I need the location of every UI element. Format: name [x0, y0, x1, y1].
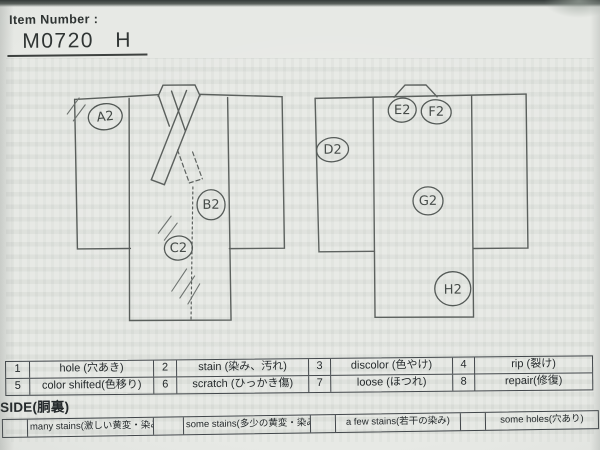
condition-legend-table: 1 hole (穴あき) 2 stain (染み、汚れ) 3 discolor …	[5, 355, 593, 396]
photo-top-edge	[0, 0, 600, 7]
legend-num: 4	[452, 357, 474, 373]
severity-label: some holes(穴あり)	[485, 411, 598, 430]
item-number-value: M0720 H	[22, 29, 147, 54]
legend-num: 2	[153, 360, 176, 376]
legend-label: scratch (ひっかき傷)	[176, 376, 308, 393]
severity-mark-cell	[310, 415, 335, 432]
severity-label: a few stains(若干の染み)	[335, 413, 460, 432]
legend-num: 8	[452, 374, 474, 390]
legend-label: repair(修復)	[474, 373, 592, 390]
legend-label: color shifted(色移り)	[29, 378, 153, 395]
front-right-sleeve	[228, 97, 284, 249]
front-collar-over-band	[151, 90, 201, 184]
legend-label: loose (ほつれ)	[330, 375, 452, 392]
marker-label-c2: C2	[170, 241, 187, 256]
severity-label: many stains(激しい黄変・染み)	[27, 418, 153, 437]
legend-label: rip (裂け)	[474, 356, 592, 373]
legend-label: discolor (色やけ)	[330, 358, 452, 375]
marker-label-h2: H2	[444, 283, 462, 298]
legend-num: 3	[308, 359, 330, 375]
marker-label-e2: E2	[394, 103, 411, 118]
front-collar-cap	[158, 85, 200, 96]
item-number-label: Item Number :	[9, 12, 147, 27]
photo-left-shadow	[0, 0, 14, 450]
legend-label: stain (染み、汚れ)	[176, 359, 308, 376]
marker-label-a2: A2	[96, 109, 115, 126]
severity-label: some stains(多少の黄変・染み)	[183, 415, 310, 434]
front-hatch-marks	[67, 97, 200, 305]
severity-mark-cell	[153, 417, 183, 434]
marker-label-g2: G2	[419, 194, 437, 209]
legend-num: 7	[308, 376, 330, 392]
marker-label-f2: F2	[428, 105, 444, 120]
condition-markers	[87, 96, 471, 309]
marker-label-b2: B2	[202, 198, 219, 213]
back-left-sleeve	[315, 98, 374, 252]
legend-label: hole (穴あき)	[29, 361, 153, 378]
photo-right-shadow	[590, 0, 600, 450]
back-right-sleeve	[472, 94, 528, 248]
kimono-condition-sheet-photo: Item Number : M0720 H	[0, 0, 600, 450]
severity-mark-cell	[460, 413, 485, 430]
legend-num: 6	[153, 377, 176, 393]
item-number-block: Item Number : M0720 H	[9, 12, 147, 57]
marker-label-d2: D2	[323, 143, 341, 158]
